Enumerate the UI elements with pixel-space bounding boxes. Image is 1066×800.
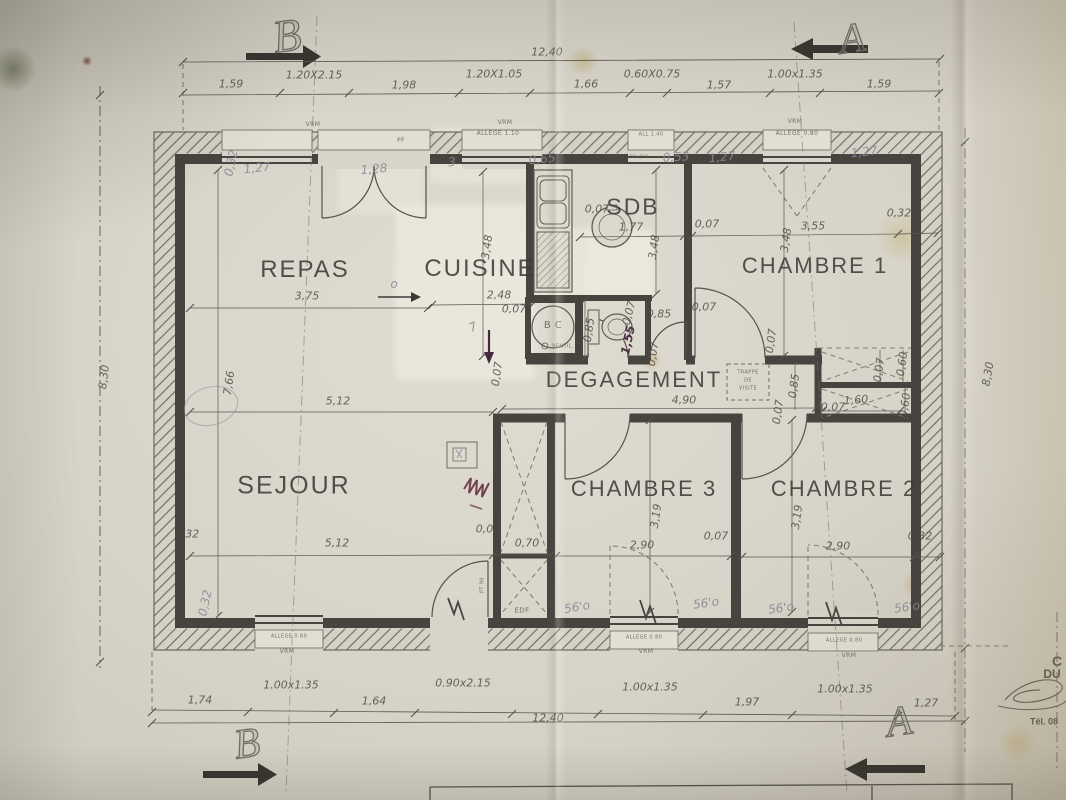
floorplan-linework — [0, 0, 1066, 800]
floorplan-photo: C DU Tél. 08 BABAREPASCUISINESDBCHAMBRE … — [0, 0, 1066, 800]
